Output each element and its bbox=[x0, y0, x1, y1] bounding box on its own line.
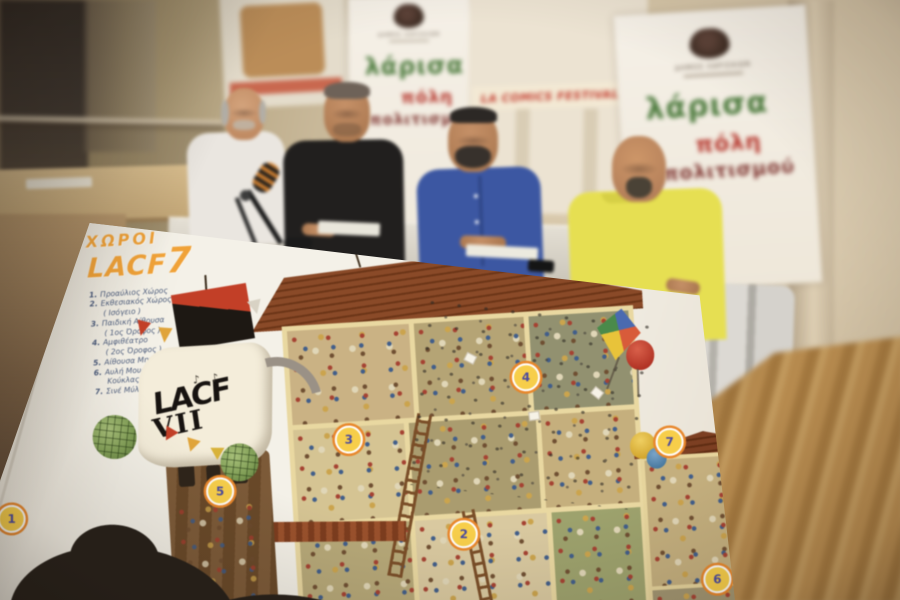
pennant-flag-icon bbox=[210, 448, 224, 460]
paper-bit-icon bbox=[528, 411, 540, 421]
pennant-flag-icon bbox=[157, 327, 172, 343]
pennant-flag-icon bbox=[247, 299, 264, 316]
venue-number: 2. bbox=[89, 299, 98, 308]
venue-number: 7. bbox=[95, 387, 104, 396]
red-black-flag bbox=[171, 283, 255, 351]
venue-marker-1: 1 bbox=[0, 505, 26, 533]
window bbox=[178, 464, 195, 487]
venue-number: 3. bbox=[91, 319, 100, 328]
venue-number: 4. bbox=[92, 338, 101, 347]
venue-marker-6: 6 bbox=[703, 565, 731, 593]
venue-number: 5. bbox=[93, 358, 102, 367]
venue-marker-5: 5 bbox=[206, 477, 234, 505]
venue-number: 1. bbox=[89, 290, 98, 299]
venue-marker-7: 7 bbox=[655, 428, 683, 456]
venue-marker-4: 4 bbox=[512, 363, 540, 391]
press-conference-photo: ΔΗΜΟΣ ΛΑΡΙΣΑΙΩΝ λάρισα πόλη πολιτισμού L… bbox=[0, 0, 900, 600]
pennant-flag-icon bbox=[134, 320, 151, 338]
venue-marker-3: 3 bbox=[335, 425, 363, 453]
room bbox=[552, 507, 647, 600]
venue-number: 6. bbox=[94, 367, 103, 376]
venue-marker-2: 2 bbox=[450, 520, 478, 548]
